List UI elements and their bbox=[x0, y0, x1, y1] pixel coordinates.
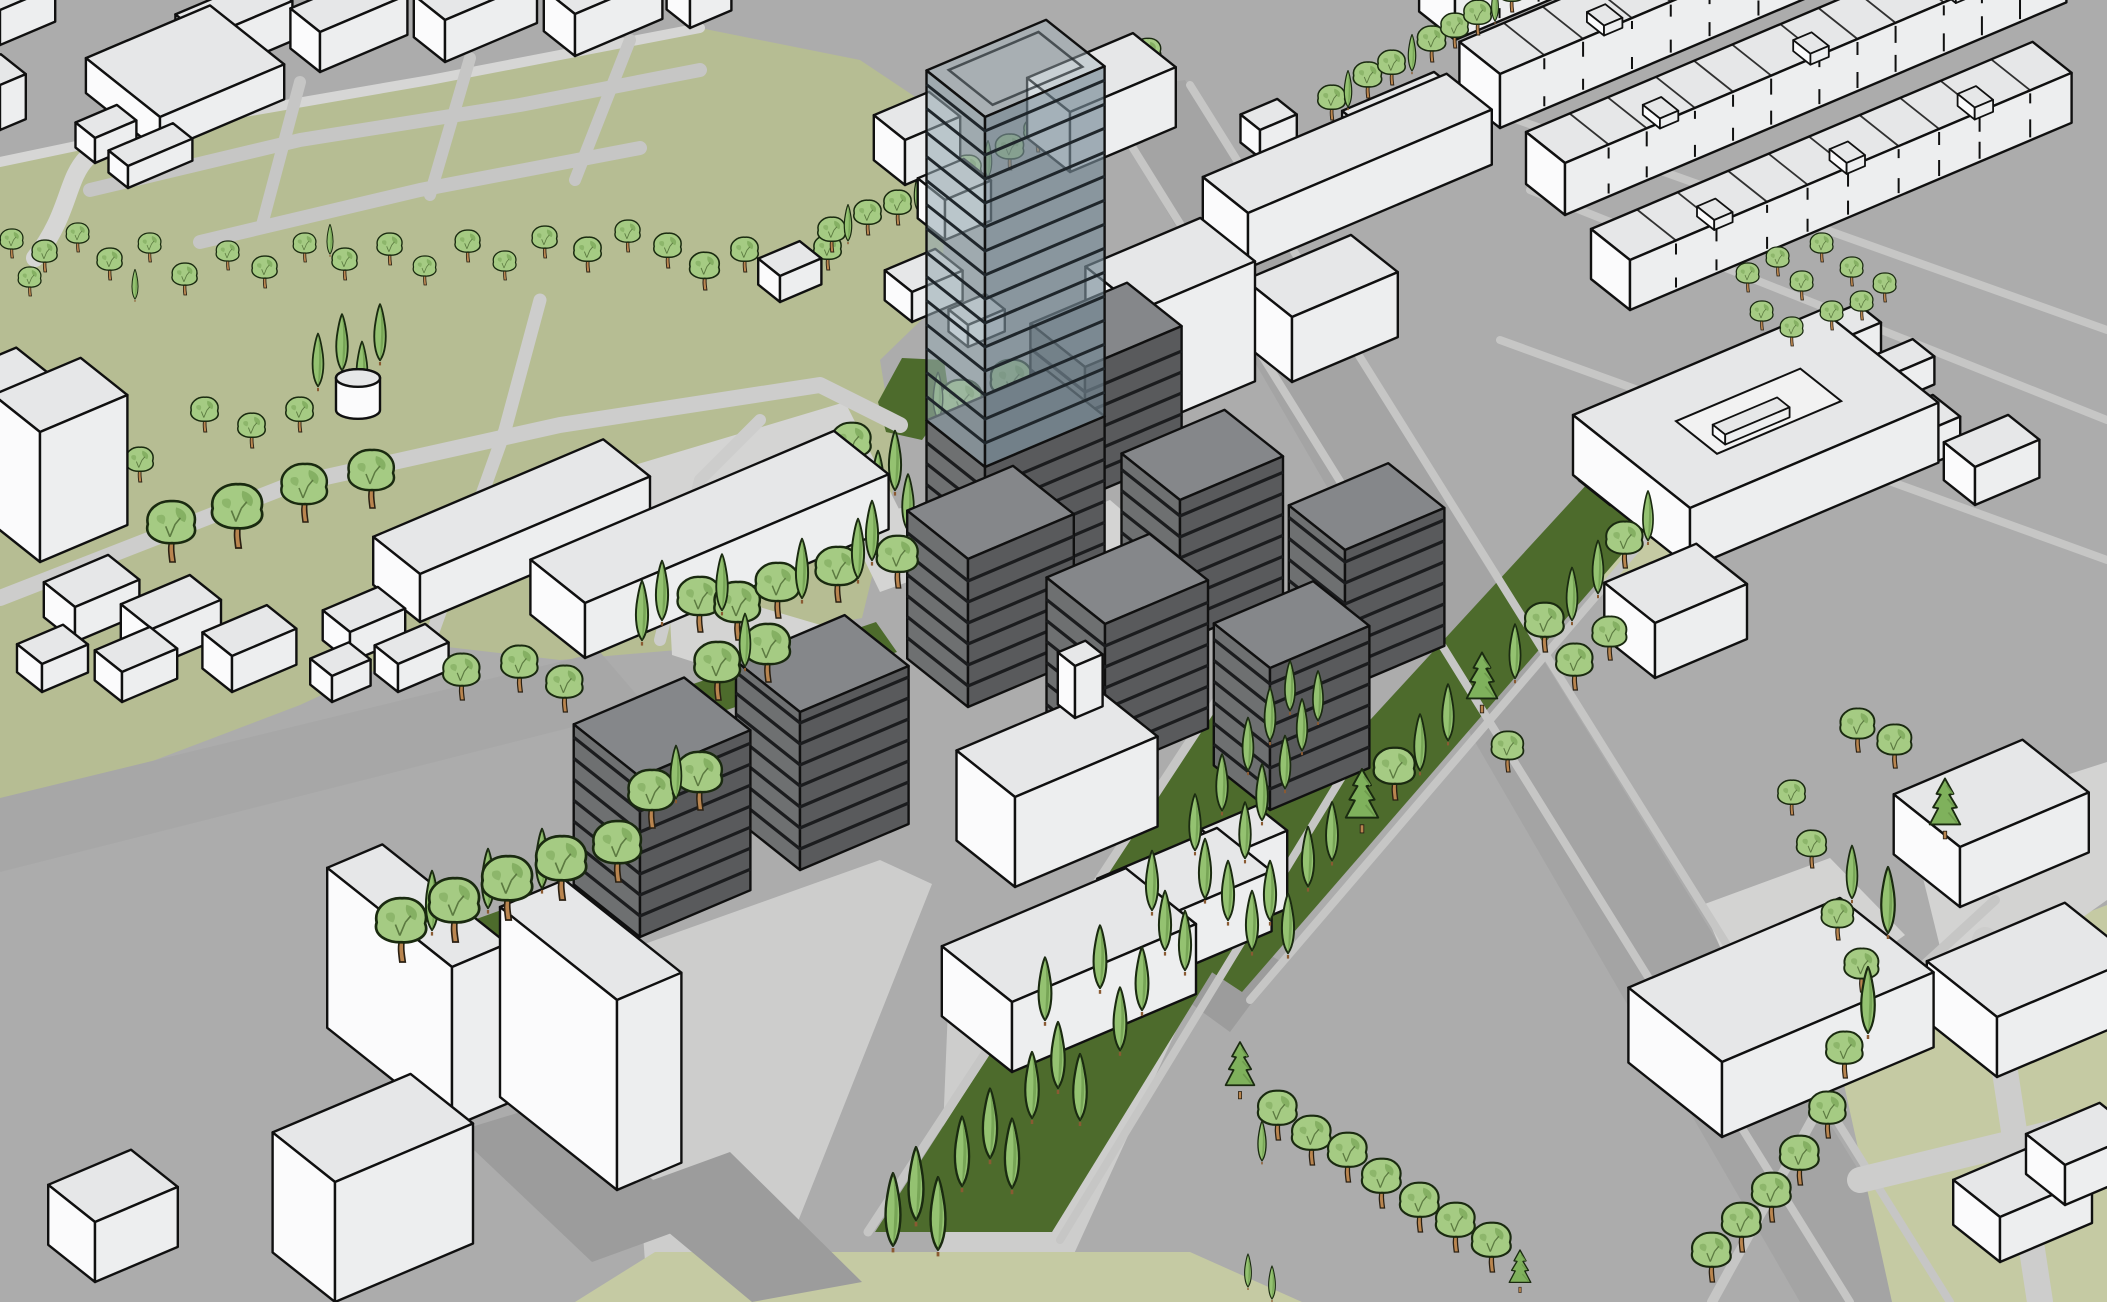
render-canvas bbox=[0, 0, 2107, 1302]
3d-massing-render bbox=[0, 0, 2107, 1302]
ground-beige bbox=[575, 1252, 1302, 1302]
context-building bbox=[0, 358, 127, 562]
context-building bbox=[1058, 641, 1103, 718]
storage-tank bbox=[336, 369, 380, 419]
city-model-viewport bbox=[0, 0, 2107, 1302]
